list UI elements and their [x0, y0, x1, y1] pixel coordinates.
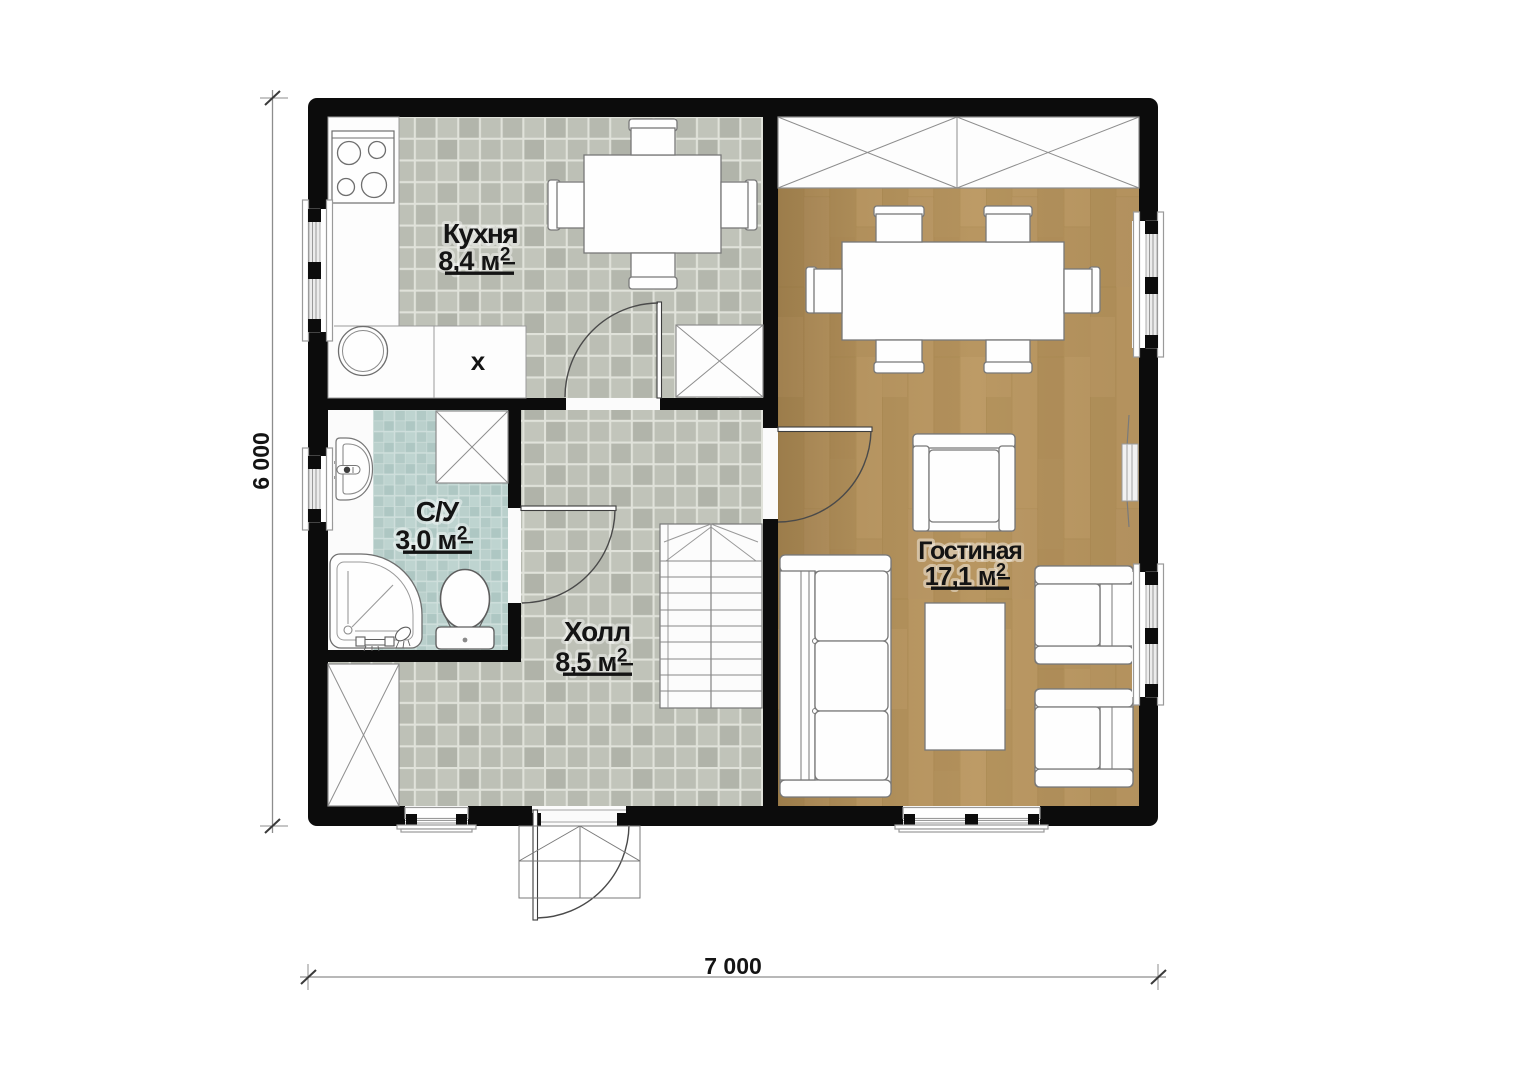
svg-text:3,0 м2: 3,0 м2 — [395, 524, 467, 556]
svg-text:8,5 м2: 8,5 м2 — [555, 646, 627, 678]
svg-text:С/У: С/У — [416, 496, 460, 527]
svg-text:Холл: Холл — [564, 616, 630, 647]
svg-text:6 000: 6 000 — [248, 432, 274, 490]
svg-text:7 000: 7 000 — [704, 953, 762, 979]
svg-text:Гостиная: Гостиная — [918, 537, 1021, 565]
svg-text:х: х — [471, 346, 486, 376]
svg-text:17,1 м2: 17,1 м2 — [925, 560, 1006, 591]
svg-text:8,4 м2: 8,4 м2 — [438, 245, 510, 277]
